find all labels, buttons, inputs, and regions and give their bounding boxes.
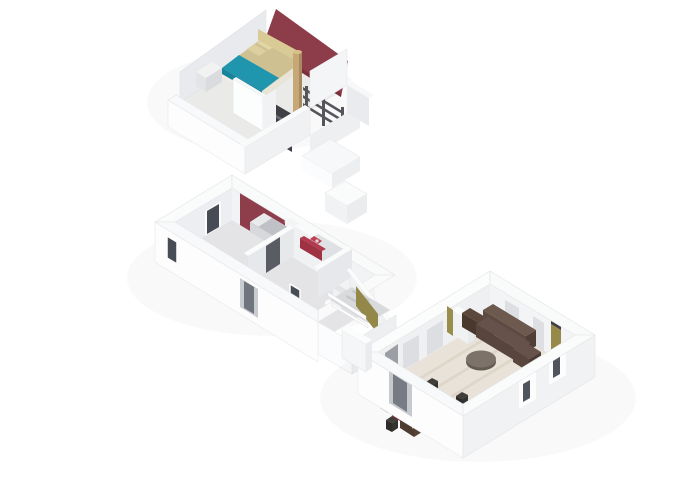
- vestibule-side: [366, 340, 372, 372]
- floor-plan-svg: [0, 0, 700, 500]
- attic-floor: [147, 9, 374, 188]
- coffee-table-top: [466, 351, 496, 368]
- olive-door-panel: [447, 306, 453, 336]
- floor-plan-render: [0, 0, 700, 500]
- chimney-post-top: [293, 50, 302, 54]
- bathroom-faucet: [315, 239, 318, 242]
